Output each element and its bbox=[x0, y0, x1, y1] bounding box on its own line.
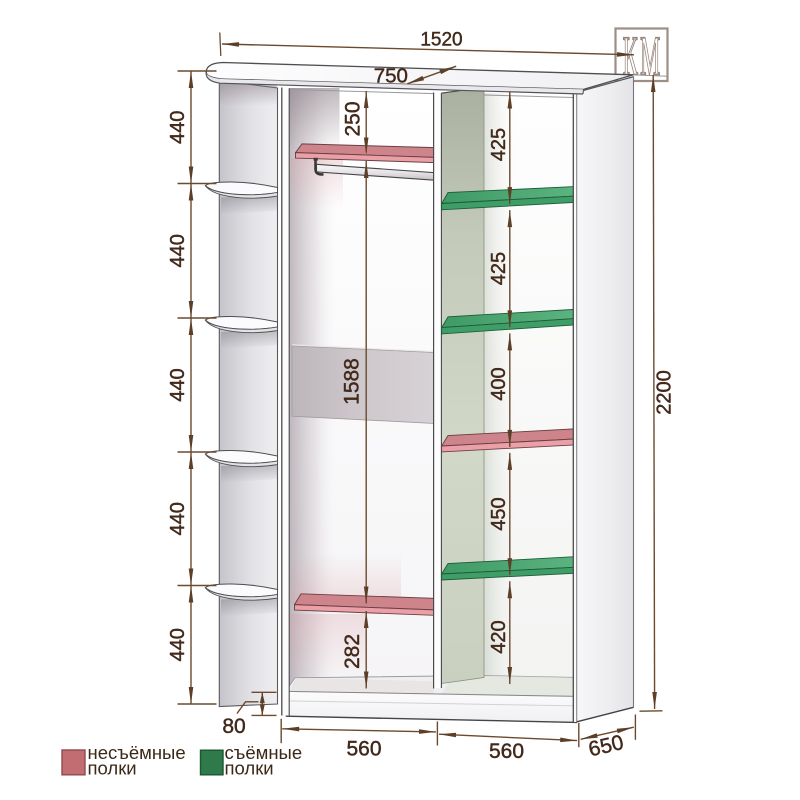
svg-text:2200: 2200 bbox=[653, 370, 675, 415]
svg-text:425: 425 bbox=[488, 128, 510, 161]
svg-text:полки: полки bbox=[225, 758, 274, 779]
svg-text:440: 440 bbox=[167, 111, 189, 144]
svg-text:80: 80 bbox=[222, 715, 245, 738]
svg-text:560: 560 bbox=[489, 740, 524, 763]
svg-text:1520: 1520 bbox=[420, 30, 462, 51]
svg-text:282: 282 bbox=[341, 634, 364, 669]
svg-text:250: 250 bbox=[342, 101, 365, 136]
svg-text:440: 440 bbox=[167, 628, 189, 661]
svg-text:425: 425 bbox=[488, 252, 510, 285]
svg-text:440: 440 bbox=[167, 234, 189, 267]
svg-text:полки: полки bbox=[88, 758, 137, 779]
svg-text:1588: 1588 bbox=[341, 358, 364, 405]
svg-text:440: 440 bbox=[167, 502, 189, 535]
svg-text:440: 440 bbox=[167, 368, 189, 401]
svg-text:560: 560 bbox=[346, 737, 381, 760]
svg-text:420: 420 bbox=[488, 620, 510, 653]
svg-text:750: 750 bbox=[374, 64, 408, 87]
svg-text:400: 400 bbox=[488, 367, 510, 400]
svg-text:450: 450 bbox=[488, 497, 510, 530]
